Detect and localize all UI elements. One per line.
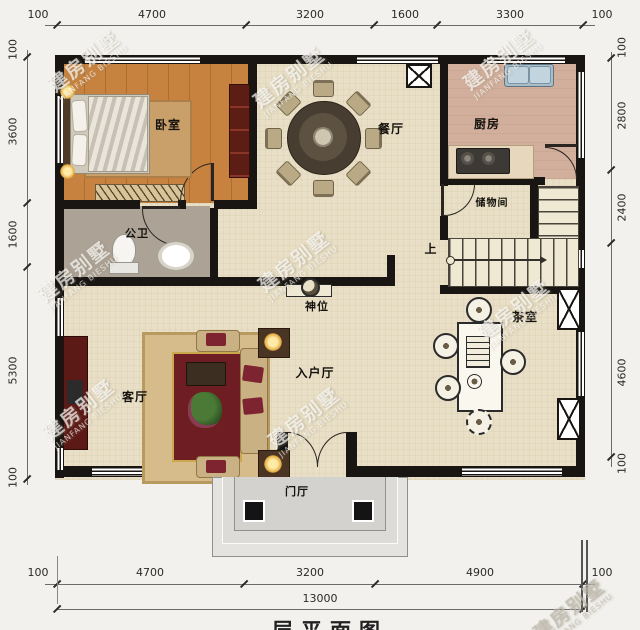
room-label-storage: 储物间 xyxy=(457,194,527,209)
dim-bottom-2: 3200 xyxy=(280,566,340,579)
dim-right-4: 100 xyxy=(616,434,629,494)
dim-left-4: 100 xyxy=(7,448,20,508)
wall-bedroom-bottom-c xyxy=(214,200,257,209)
window-dining-top xyxy=(357,56,438,63)
stove-burner-2 xyxy=(482,152,495,165)
dining-chair xyxy=(313,180,334,197)
dim-top-3: 1600 xyxy=(375,8,435,21)
room-label-tea-room: 茶室 xyxy=(490,308,560,325)
bedroom-wardrobe xyxy=(229,84,250,178)
tea-tray xyxy=(466,336,490,368)
bed-pillow-2 xyxy=(71,134,88,167)
entry-door-post-right xyxy=(346,432,357,468)
bed-blanket xyxy=(88,96,148,172)
armchair-top-cushion xyxy=(206,333,226,346)
lamp-glow-bottom xyxy=(264,455,282,473)
window-tea-right xyxy=(577,332,584,396)
window-kitchen-top xyxy=(487,56,565,63)
kitchen-sink-basin-2 xyxy=(529,66,551,84)
room-label-entry-hall: 入户厅 xyxy=(280,364,350,381)
dim-line-bottom xyxy=(45,584,595,585)
tea-chair xyxy=(500,349,526,375)
bathroom-sink xyxy=(157,241,195,271)
sofa-cushion-2 xyxy=(242,397,264,415)
column-tea-right-1 xyxy=(557,288,581,330)
dim-extension-right-1 xyxy=(581,540,583,612)
dim-right-0: 100 xyxy=(616,18,629,78)
porch-column-right xyxy=(352,500,374,522)
window-living-left-2 xyxy=(56,448,63,470)
dim-bottom-1: 4700 xyxy=(120,566,180,579)
window-kitchen-right xyxy=(577,72,584,158)
wall-storage-stair xyxy=(530,185,538,238)
wall-storage-left xyxy=(440,216,448,240)
toilet-tank xyxy=(109,262,139,274)
column-tea-right-2 xyxy=(557,398,581,440)
bed-pillow-1 xyxy=(71,100,88,133)
wall-living-top xyxy=(55,277,395,286)
dim-total-width: 13000 xyxy=(290,592,350,605)
kitchen-sink-basin-1 xyxy=(507,66,529,84)
bed-headboard xyxy=(63,92,70,174)
room-label-bedroom: 卧室 xyxy=(133,116,203,133)
wall-bedroom-bottom-a xyxy=(55,200,140,209)
coffee-table xyxy=(186,362,226,386)
window-living-left-1 xyxy=(56,298,63,336)
tea-chair xyxy=(466,409,492,435)
tv-set xyxy=(67,380,83,404)
tea-chair xyxy=(433,333,459,359)
dining-lazy-susan xyxy=(313,127,333,147)
room-label-kitchen: 厨房 xyxy=(452,115,522,132)
stairs-up-arrowhead xyxy=(540,256,547,264)
dim-bottom-3: 4900 xyxy=(450,566,510,579)
room-label-dining: 餐厅 xyxy=(356,120,426,137)
porch-column-left xyxy=(243,500,265,522)
wall-bathroom-right xyxy=(210,208,218,279)
stairs-up-line xyxy=(450,259,540,261)
window-bedroom-top xyxy=(85,56,200,63)
lamp-glow-top xyxy=(264,333,282,351)
dim-right-1: 2800 xyxy=(616,86,629,146)
dim-line-right xyxy=(611,52,612,467)
stairs-lower-flight xyxy=(448,238,579,287)
stairs-upper-flight xyxy=(538,186,579,240)
plan-title: 层平面图 xyxy=(210,615,450,630)
dim-left-1: 3600 xyxy=(7,102,20,162)
shrine-icon xyxy=(301,278,320,297)
dim-bottom-0: 100 xyxy=(8,566,68,579)
flower-arrangement xyxy=(188,392,222,428)
wall-hall-stub xyxy=(387,255,395,286)
stairs-up-dot xyxy=(446,256,455,265)
wall-kitchen-left xyxy=(440,55,448,186)
bedroom-lamp-1 xyxy=(60,84,75,99)
dining-chair xyxy=(313,80,334,97)
sofa-cushion-1 xyxy=(242,365,264,384)
shrine-label: 神位 xyxy=(282,298,352,314)
dim-extension-right-2 xyxy=(586,540,588,612)
dim-top-4: 3300 xyxy=(480,8,540,21)
dining-chair xyxy=(265,128,282,149)
stairs-up-label: 上 xyxy=(396,240,466,257)
bedroom-lamp-2 xyxy=(60,164,75,179)
dim-right-2: 2400 xyxy=(616,178,629,238)
room-label-porch: 门厅 xyxy=(262,483,332,499)
dim-left-2: 1600 xyxy=(7,205,20,265)
dim-top-2: 3200 xyxy=(280,8,340,21)
room-label-living: 客厅 xyxy=(100,388,170,405)
stove-burner-1 xyxy=(461,152,474,165)
armchair-bottom-cushion xyxy=(206,460,226,473)
dim-right-3: 4600 xyxy=(616,343,629,403)
dim-line-total xyxy=(57,609,585,610)
dim-top-1: 4700 xyxy=(122,8,182,21)
shaft-column-dining xyxy=(406,64,432,88)
dim-line-top xyxy=(45,25,595,26)
dim-left-3: 5300 xyxy=(7,341,20,401)
room-label-bathroom: 公卫 xyxy=(102,225,172,241)
tea-chair xyxy=(435,375,461,401)
dim-extension-left xyxy=(57,556,58,604)
floor-plan-canvas: 卧室 餐厅 厨房 公卫 储物间 上 神位 客厅 入户厅 茶室 门厅 100 47… xyxy=(0,0,640,630)
window-tea-bottom xyxy=(462,467,562,476)
tea-chair xyxy=(466,297,492,323)
dim-left-0: 100 xyxy=(7,20,20,80)
window-bedroom-left xyxy=(56,96,63,163)
